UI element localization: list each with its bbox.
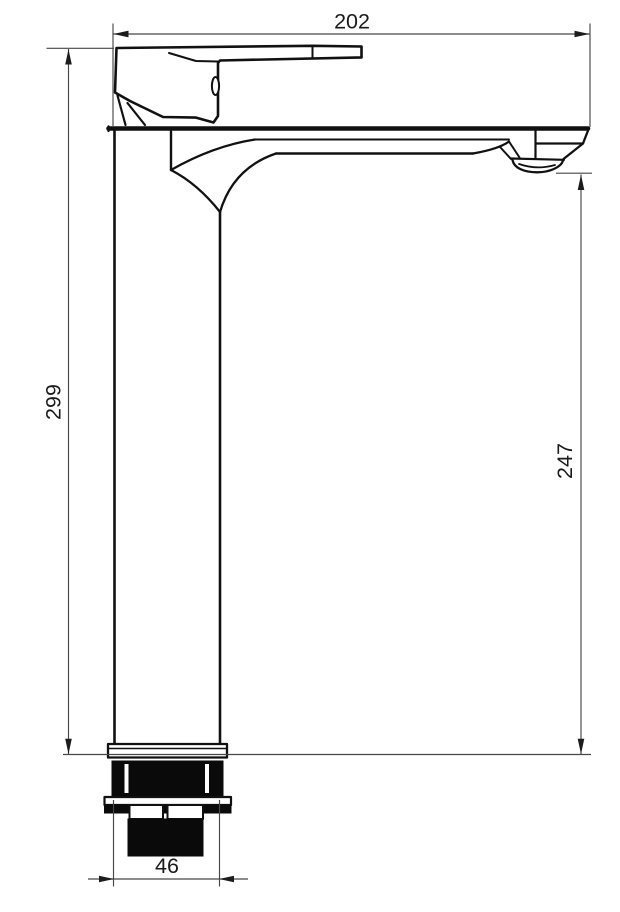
faucet-technical-drawing: 202 299 247 46 (0, 0, 620, 912)
base-body-slit-left (125, 764, 129, 793)
fillet-upper-curve (171, 140, 255, 171)
spout-end-slope (564, 144, 584, 160)
arrow-202-right (575, 31, 590, 38)
fillet-under-spout-curve (220, 154, 276, 213)
arrow-46-right (219, 876, 234, 883)
base-ring (108, 744, 227, 758)
handle-cap-detail (212, 77, 219, 95)
handle-skirt-line-1 (118, 96, 126, 126)
dim-label-left-height: 299 (42, 384, 66, 420)
aerator-rim (511, 159, 564, 160)
arrow-299-top (65, 49, 72, 64)
base-flange (105, 797, 232, 805)
spout-end-bottom (536, 131, 588, 144)
arrow-202-left (114, 31, 129, 38)
arrow-299-bottom (65, 739, 72, 754)
base-fitting-right (168, 805, 204, 819)
dim-label-bottom-width: 46 (155, 854, 179, 878)
spout-right-wedge-2 (501, 148, 512, 160)
arrow-247-top (578, 175, 585, 190)
aerator-bowl (513, 160, 564, 172)
fillet-lower-curve (171, 170, 220, 212)
handle-silhouette (115, 46, 362, 123)
spout-right-wedge-1 (509, 142, 520, 158)
faucet-outline (105, 46, 589, 856)
arrow-46-left (99, 876, 114, 883)
dim-label-top-width: 202 (334, 10, 370, 34)
base-body-slit-right (205, 764, 209, 793)
mounting-base (105, 744, 232, 856)
arrow-247-bottom (578, 739, 585, 754)
base-fitting-left (130, 805, 164, 819)
aerator-inner-arc (519, 164, 555, 167)
base-shank-black (128, 819, 203, 856)
technical-drawing-canvas: 202 299 247 46 (0, 0, 620, 912)
dim-label-right-height: 247 (553, 443, 577, 479)
